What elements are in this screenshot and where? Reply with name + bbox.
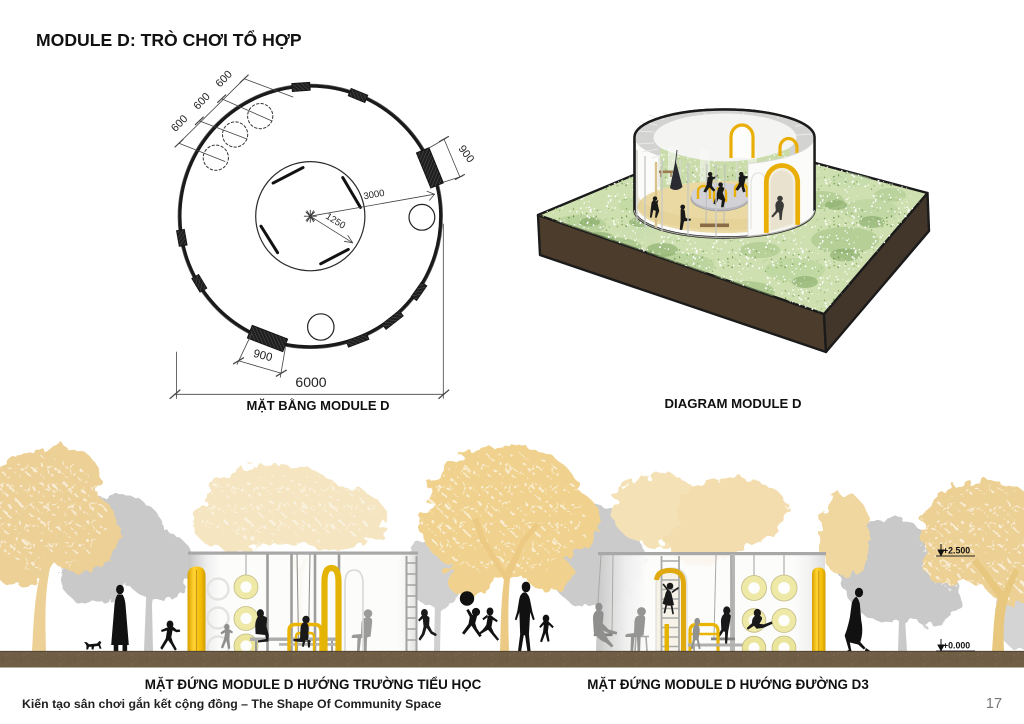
- svg-text:MODULE D: TRÒ CHƠI TỔ HỢP: MODULE D: TRÒ CHƠI TỔ HỢP: [36, 29, 302, 50]
- svg-text:MẶT ĐỨNG MODULE D HƯỚNG TRƯỜNG: MẶT ĐỨNG MODULE D HƯỚNG TRƯỜNG TIỂU HỌC: [145, 677, 482, 692]
- svg-text:6000: 6000: [295, 374, 326, 390]
- svg-text:Kiến tạo sân chơi gắn kết cộng: Kiến tạo sân chơi gắn kết cộng đồng – Th…: [22, 696, 442, 711]
- svg-text:17: 17: [986, 696, 1002, 712]
- svg-text:+2.500: +2.500: [943, 546, 970, 556]
- svg-text:MẶT ĐỨNG MODULE D HƯỚNG ĐƯỜNG: MẶT ĐỨNG MODULE D HƯỚNG ĐƯỜNG D3: [587, 677, 869, 692]
- svg-text:MẶT BẰNG MODULE D: MẶT BẰNG MODULE D: [247, 398, 390, 413]
- svg-text:DIAGRAM MODULE D: DIAGRAM MODULE D: [665, 396, 802, 411]
- svg-text:+0.000: +0.000: [943, 641, 970, 651]
